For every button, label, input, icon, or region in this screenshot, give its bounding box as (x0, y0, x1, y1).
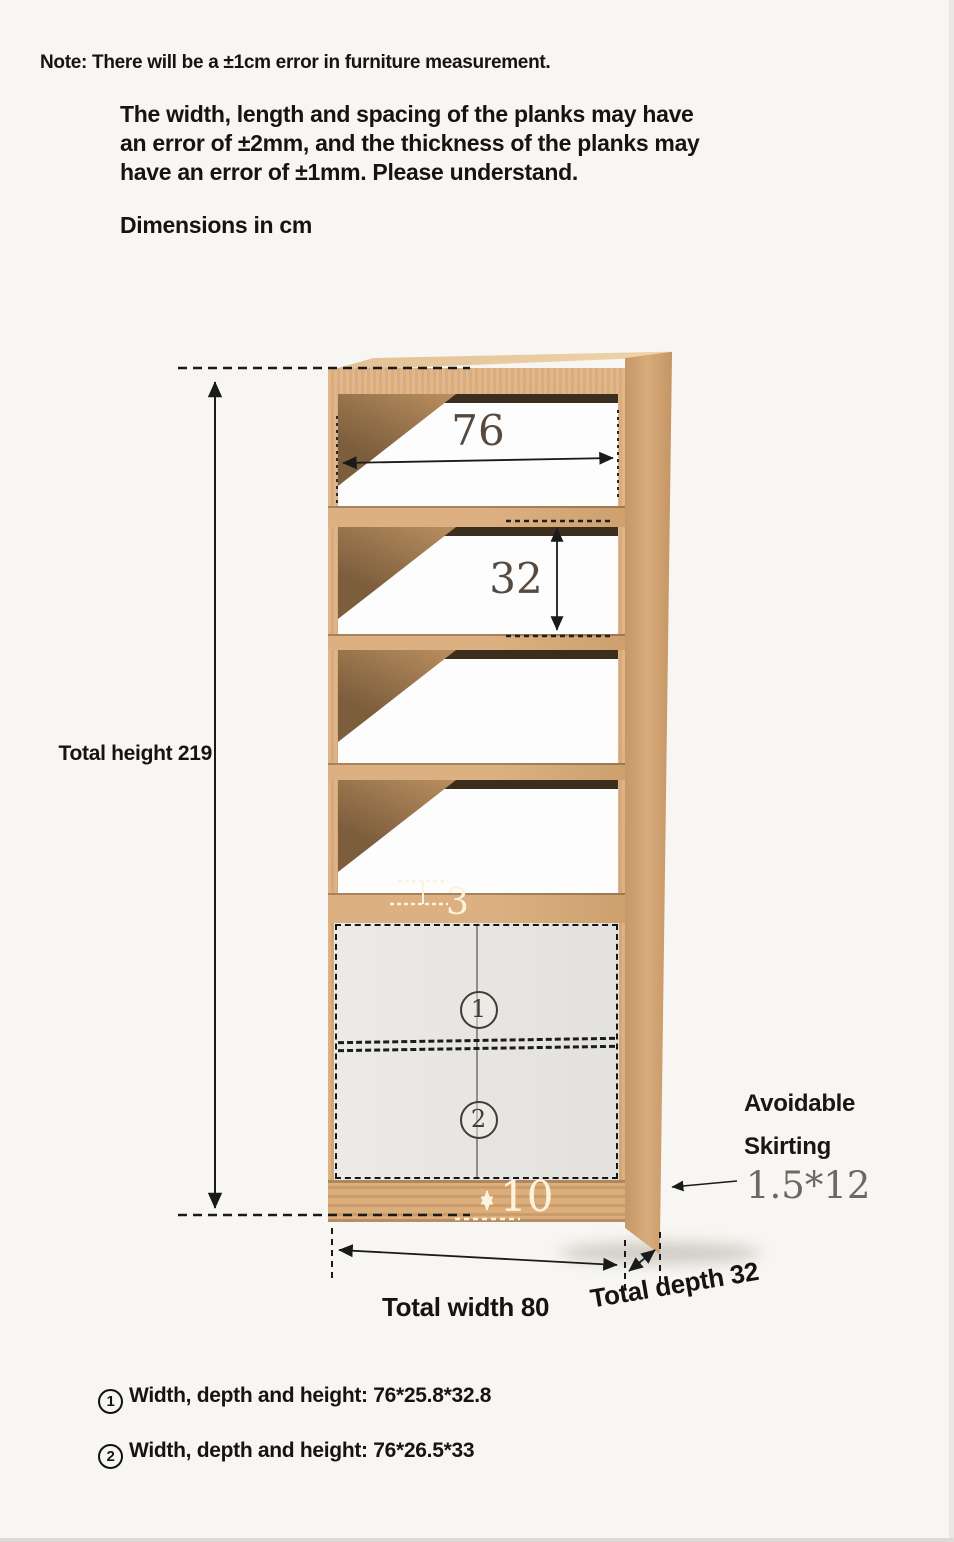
shelf-board-2 (328, 634, 625, 650)
furniture-dimension-diagram: Note: There will be a ±1cm error in furn… (0, 0, 954, 1542)
opening-4-depth-shadow (338, 780, 456, 872)
units-label: Dimensions in cm (120, 212, 312, 239)
skirting-note-line-2: Skirting (744, 1133, 831, 1161)
footnote-2-marker: 2 (98, 1444, 123, 1469)
shelf-board-3 (328, 763, 625, 780)
shelf-board-4 (328, 893, 625, 923)
tolerance-line-2: an error of ±2mm, and the thickness of t… (120, 129, 700, 158)
photo-edge-bottom (0, 1538, 954, 1542)
footnote-1: 1Width, depth and height: 76*25.8*32.8 (98, 1384, 491, 1414)
opening-height-label: 32 (478, 554, 554, 603)
tolerance-line-3: have an error of ±1mm. Please understand… (120, 158, 700, 187)
total-width-label: Total width 80 (382, 1292, 549, 1323)
door-marker-1: 1 (460, 991, 498, 1029)
skirting-pointer-arrow (672, 1181, 737, 1187)
inner-width-label: 76 (436, 406, 520, 455)
shelf-opening-4 (338, 780, 618, 893)
footnote-1-text: Width, depth and height: 76*25.8*32.8 (129, 1384, 491, 1407)
cabinet-side-panel (625, 350, 674, 1256)
total-depth-label: Total depth 32 (588, 1256, 761, 1315)
skirting-note-line-1: Avoidable (744, 1090, 855, 1118)
tolerance-line-1: The width, length and spacing of the pla… (120, 100, 700, 129)
cabinet-plinth (328, 1180, 625, 1222)
lower-cabinet-doors: 1 2 (334, 923, 619, 1180)
footnote-1-marker: 1 (98, 1389, 123, 1414)
door-marker-2: 2 (460, 1101, 498, 1139)
shelf-opening-3 (338, 650, 618, 763)
total-height-label: Total height 219 (58, 742, 212, 766)
door-seam (476, 926, 478, 1177)
cabinet-front-face: 1 2 (328, 368, 625, 1222)
opening-3-depth-shadow (338, 650, 456, 742)
footnote-2-text: Width, depth and height: 76*26.5*33 (129, 1439, 474, 1462)
skirting-size-label: 1.5*12 (746, 1164, 870, 1207)
shelf-board-1 (328, 506, 625, 527)
photo-edge-right (949, 0, 954, 1542)
shelf-thickness-label: 3 (446, 882, 469, 923)
tolerance-paragraph: The width, length and spacing of the pla… (120, 100, 700, 187)
opening-2-depth-shadow (338, 527, 456, 619)
plinth-height-label: 10 (500, 1172, 553, 1221)
note-headline: Note: There will be a ±1cm error in furn… (40, 52, 550, 74)
footnote-2: 2Width, depth and height: 76*26.5*33 (98, 1439, 474, 1469)
